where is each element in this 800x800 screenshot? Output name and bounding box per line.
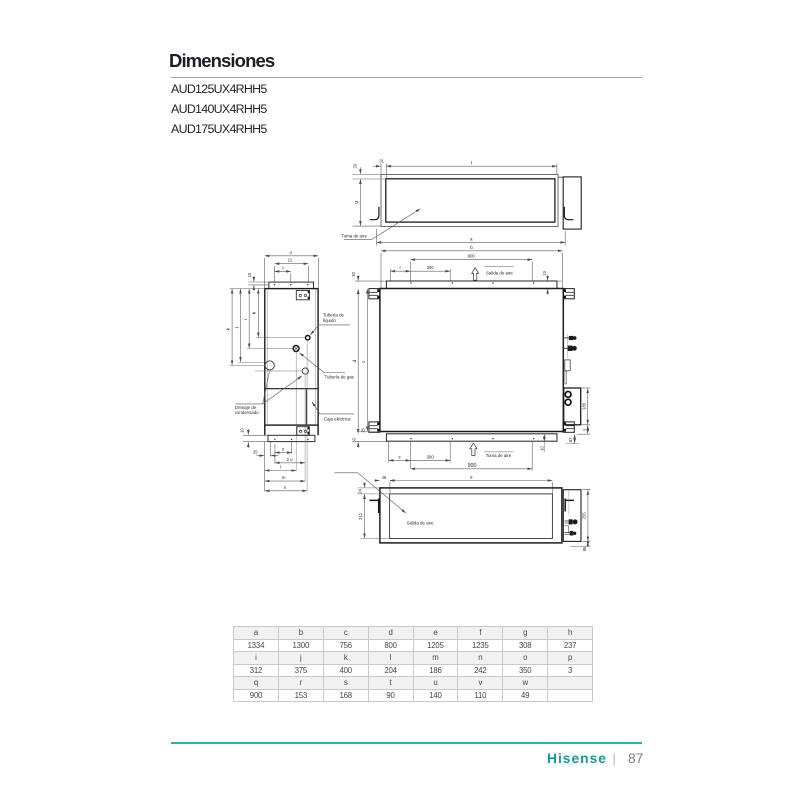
- svg-text:900: 900: [468, 254, 476, 259]
- svg-text:10: 10: [542, 270, 547, 275]
- svg-text:31: 31: [379, 158, 384, 163]
- svg-text:t: t: [282, 265, 284, 270]
- svg-text:2 u: 2 u: [286, 457, 293, 462]
- svg-text:185: 185: [581, 402, 586, 410]
- svg-text:c: c: [361, 360, 366, 363]
- svg-text:r: r: [399, 265, 401, 270]
- svg-text:Tubería de gas: Tubería de gas: [325, 374, 355, 379]
- svg-text:j: j: [234, 327, 239, 329]
- svg-text:25: 25: [360, 428, 365, 433]
- svg-text:d: d: [352, 359, 357, 362]
- svg-text:condensado: condensado: [235, 410, 259, 415]
- svg-text:Salida de aire: Salida de aire: [486, 271, 513, 276]
- svg-text:30: 30: [352, 437, 357, 442]
- svg-text:300: 300: [427, 454, 435, 459]
- svg-text:líquido: líquido: [323, 318, 336, 323]
- svg-text:300: 300: [427, 265, 435, 270]
- svg-text:Toma de aire: Toma de aire: [342, 233, 368, 238]
- svg-text:s: s: [398, 454, 401, 459]
- svg-text:v: v: [581, 428, 586, 431]
- svg-text:255: 255: [581, 512, 586, 520]
- svg-text:f: f: [471, 161, 473, 166]
- svg-text:g: g: [353, 201, 358, 204]
- svg-text:95: 95: [582, 546, 587, 551]
- svg-text:e: e: [470, 475, 473, 480]
- svg-text:k: k: [226, 327, 231, 330]
- svg-text:b: b: [470, 245, 473, 250]
- svg-text:25: 25: [253, 450, 258, 455]
- svg-text:m: m: [282, 475, 286, 480]
- svg-text:21: 21: [288, 258, 293, 263]
- svg-text:u: u: [282, 447, 285, 452]
- svg-text:Caja eléctrica: Caja eléctrica: [324, 417, 351, 422]
- svg-text:87: 87: [568, 437, 573, 442]
- svg-text:24: 24: [358, 488, 363, 493]
- svg-text:20: 20: [353, 163, 358, 168]
- svg-text:a: a: [470, 237, 473, 242]
- svg-text:h: h: [252, 311, 257, 314]
- svg-text:212: 212: [358, 512, 363, 520]
- svg-text:10: 10: [247, 272, 252, 277]
- svg-text:Salida de aire: Salida de aire: [407, 520, 434, 525]
- svg-text:i: i: [243, 319, 248, 320]
- svg-text:900: 900: [468, 463, 477, 469]
- svg-text:10: 10: [239, 428, 244, 433]
- svg-text:n: n: [284, 485, 287, 490]
- svg-text:46: 46: [382, 475, 387, 480]
- svg-text:Tubería de: Tubería de: [323, 312, 345, 317]
- svg-text:l: l: [280, 465, 281, 470]
- svg-text:30: 30: [351, 271, 356, 276]
- svg-text:10: 10: [539, 446, 544, 451]
- svg-text:o: o: [290, 250, 293, 255]
- svg-text:Toma de aire: Toma de aire: [486, 453, 512, 458]
